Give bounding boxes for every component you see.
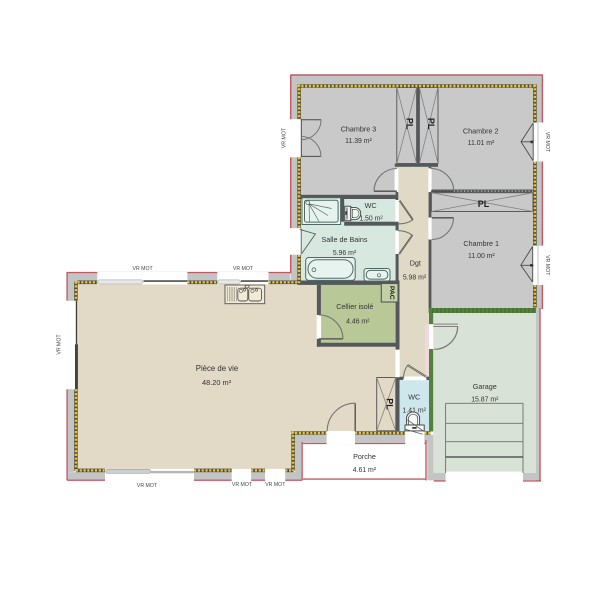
svg-text:Chambre 3: Chambre 3 (341, 125, 377, 134)
svg-text:Pièce de vie: Pièce de vie (196, 364, 238, 373)
svg-text:15.87 m²: 15.87 m² (471, 396, 499, 403)
svg-text:Chambre 2: Chambre 2 (463, 126, 499, 135)
svg-text:PL: PL (384, 398, 394, 410)
svg-text:Chambre 1: Chambre 1 (463, 239, 499, 248)
svg-text:VR MOT: VR MOT (544, 255, 550, 276)
svg-text:Porche: Porche (353, 452, 376, 461)
svg-text:1.41 m²: 1.41 m² (403, 407, 427, 414)
svg-text:VR MOT: VR MOT (544, 132, 550, 153)
svg-text:11.01 m²: 11.01 m² (468, 140, 495, 147)
svg-text:11.00 m²: 11.00 m² (468, 253, 495, 260)
svg-text:PL: PL (405, 118, 415, 130)
svg-text:VR MOT: VR MOT (133, 266, 154, 272)
svg-text:Cellier isolé: Cellier isolé (336, 302, 373, 311)
svg-text:PL: PL (478, 199, 490, 209)
svg-text:48.20 m²: 48.20 m² (202, 378, 232, 387)
svg-text:PAC: PAC (388, 286, 395, 300)
svg-text:VR MOT: VR MOT (137, 483, 158, 489)
svg-text:4.46 m²: 4.46 m² (346, 318, 370, 325)
svg-text:WC: WC (365, 201, 377, 210)
svg-text:VR MOT: VR MOT (233, 266, 254, 272)
svg-text:Salle de Bains: Salle de Bains (322, 235, 368, 244)
svg-text:Garage: Garage (473, 382, 497, 391)
svg-text:1.50 m²: 1.50 m² (359, 216, 383, 223)
svg-text:VR MOT: VR MOT (265, 482, 286, 488)
svg-text:5.96 m²: 5.96 m² (333, 250, 357, 257)
svg-text:11.39 m²: 11.39 m² (345, 138, 372, 145)
svg-text:VR MOT: VR MOT (232, 482, 253, 488)
svg-text:4.61 m²: 4.61 m² (353, 467, 377, 474)
svg-text:WC: WC (408, 392, 420, 401)
svg-text:PL: PL (426, 118, 436, 130)
svg-text:VR MOT: VR MOT (281, 127, 287, 148)
svg-text:5.98 m²: 5.98 m² (403, 275, 427, 282)
svg-text:Dgt: Dgt (410, 258, 421, 267)
svg-text:VR MOT: VR MOT (57, 334, 63, 355)
